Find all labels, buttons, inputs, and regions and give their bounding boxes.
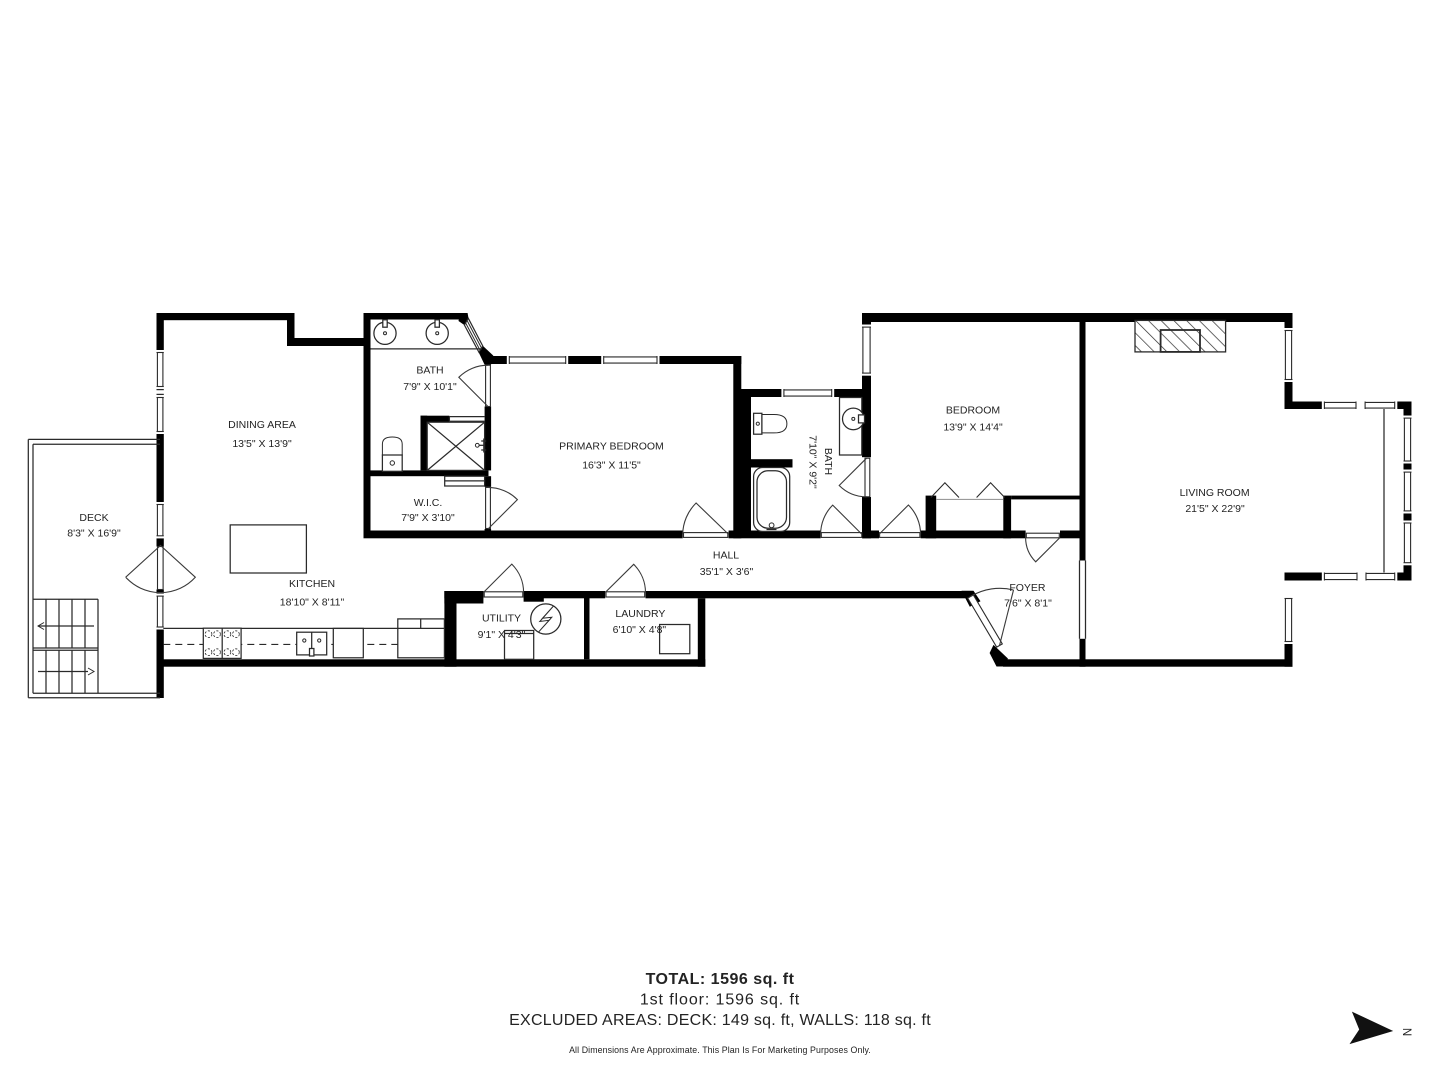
svg-text:BATH: BATH xyxy=(822,448,834,475)
svg-text:1st floor: 1596 sq. ft: 1st floor: 1596 sq. ft xyxy=(640,992,800,1009)
svg-text:LIVING ROOM: LIVING ROOM xyxy=(1180,487,1250,499)
svg-text:LAUNDRY: LAUNDRY xyxy=(615,608,665,620)
svg-text:9'1" X 4'3": 9'1" X 4'3" xyxy=(478,629,526,641)
svg-text:BATH: BATH xyxy=(416,365,443,377)
svg-text:7'9" X 3'10": 7'9" X 3'10" xyxy=(401,512,455,524)
svg-text:N: N xyxy=(1400,1028,1412,1036)
svg-text:HALL: HALL xyxy=(713,550,739,562)
svg-text:DINING AREA: DINING AREA xyxy=(228,419,296,431)
svg-text:6'10" X 4'8": 6'10" X 4'8" xyxy=(613,624,667,636)
svg-text:W.I.C.: W.I.C. xyxy=(414,497,443,509)
svg-text:7'9" X 10'1": 7'9" X 10'1" xyxy=(403,381,457,393)
svg-text:DECK: DECK xyxy=(79,512,108,524)
svg-text:All Dimensions Are Approximate: All Dimensions Are Approximate. This Pla… xyxy=(569,1045,871,1055)
svg-text:18'10" X 8'11": 18'10" X 8'11" xyxy=(280,597,345,609)
svg-text:16'3" X 11'5": 16'3" X 11'5" xyxy=(582,460,641,472)
svg-text:7'10" X 9'2": 7'10" X 9'2" xyxy=(806,435,818,489)
svg-text:35'1" X 3'6": 35'1" X 3'6" xyxy=(700,566,754,578)
svg-text:PRIMARY BEDROOM: PRIMARY BEDROOM xyxy=(559,441,664,453)
svg-text:TOTAL: 1596 sq. ft: TOTAL: 1596 sq. ft xyxy=(646,971,795,988)
svg-text:BEDROOM: BEDROOM xyxy=(946,405,1000,417)
svg-text:UTILITY: UTILITY xyxy=(482,613,521,625)
svg-text:8'3" X 16'9": 8'3" X 16'9" xyxy=(67,528,121,540)
svg-text:KITCHEN: KITCHEN xyxy=(289,578,335,590)
svg-text:EXCLUDED AREAS: DECK: 149 sq.: EXCLUDED AREAS: DECK: 149 sq. ft, WALLS:… xyxy=(509,1012,931,1029)
svg-text:FOYER: FOYER xyxy=(1009,582,1046,594)
svg-text:7'6" X 8'1": 7'6" X 8'1" xyxy=(1004,598,1052,610)
svg-text:21'5" X 22'9": 21'5" X 22'9" xyxy=(1185,503,1245,515)
svg-text:13'5" X 13'9": 13'5" X 13'9" xyxy=(232,438,292,450)
svg-text:13'9" X 14'4": 13'9" X 14'4" xyxy=(943,422,1003,434)
